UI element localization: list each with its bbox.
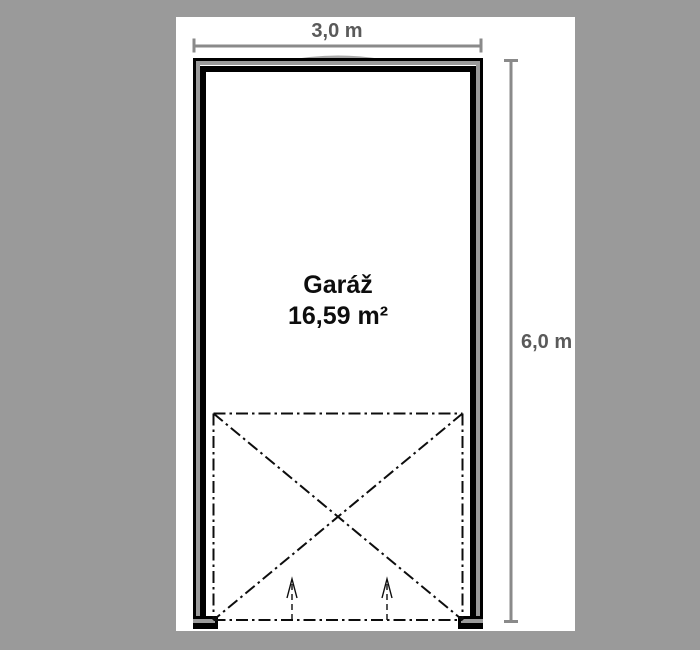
room-name-label: Garáž — [303, 271, 372, 299]
floor-plan-page: 3,0 m 6,0 m — [0, 0, 700, 650]
jamb-left-bottom-line — [193, 623, 218, 629]
height-dimension-label: 6,0 m — [521, 331, 572, 353]
floor-plan-canvas: 3,0 m 6,0 m — [0, 0, 700, 650]
width-dimension-label: 3,0 m — [311, 20, 362, 42]
room-area-label: 16,59 m² — [288, 302, 388, 330]
jamb-right-bottom-line — [458, 623, 483, 629]
